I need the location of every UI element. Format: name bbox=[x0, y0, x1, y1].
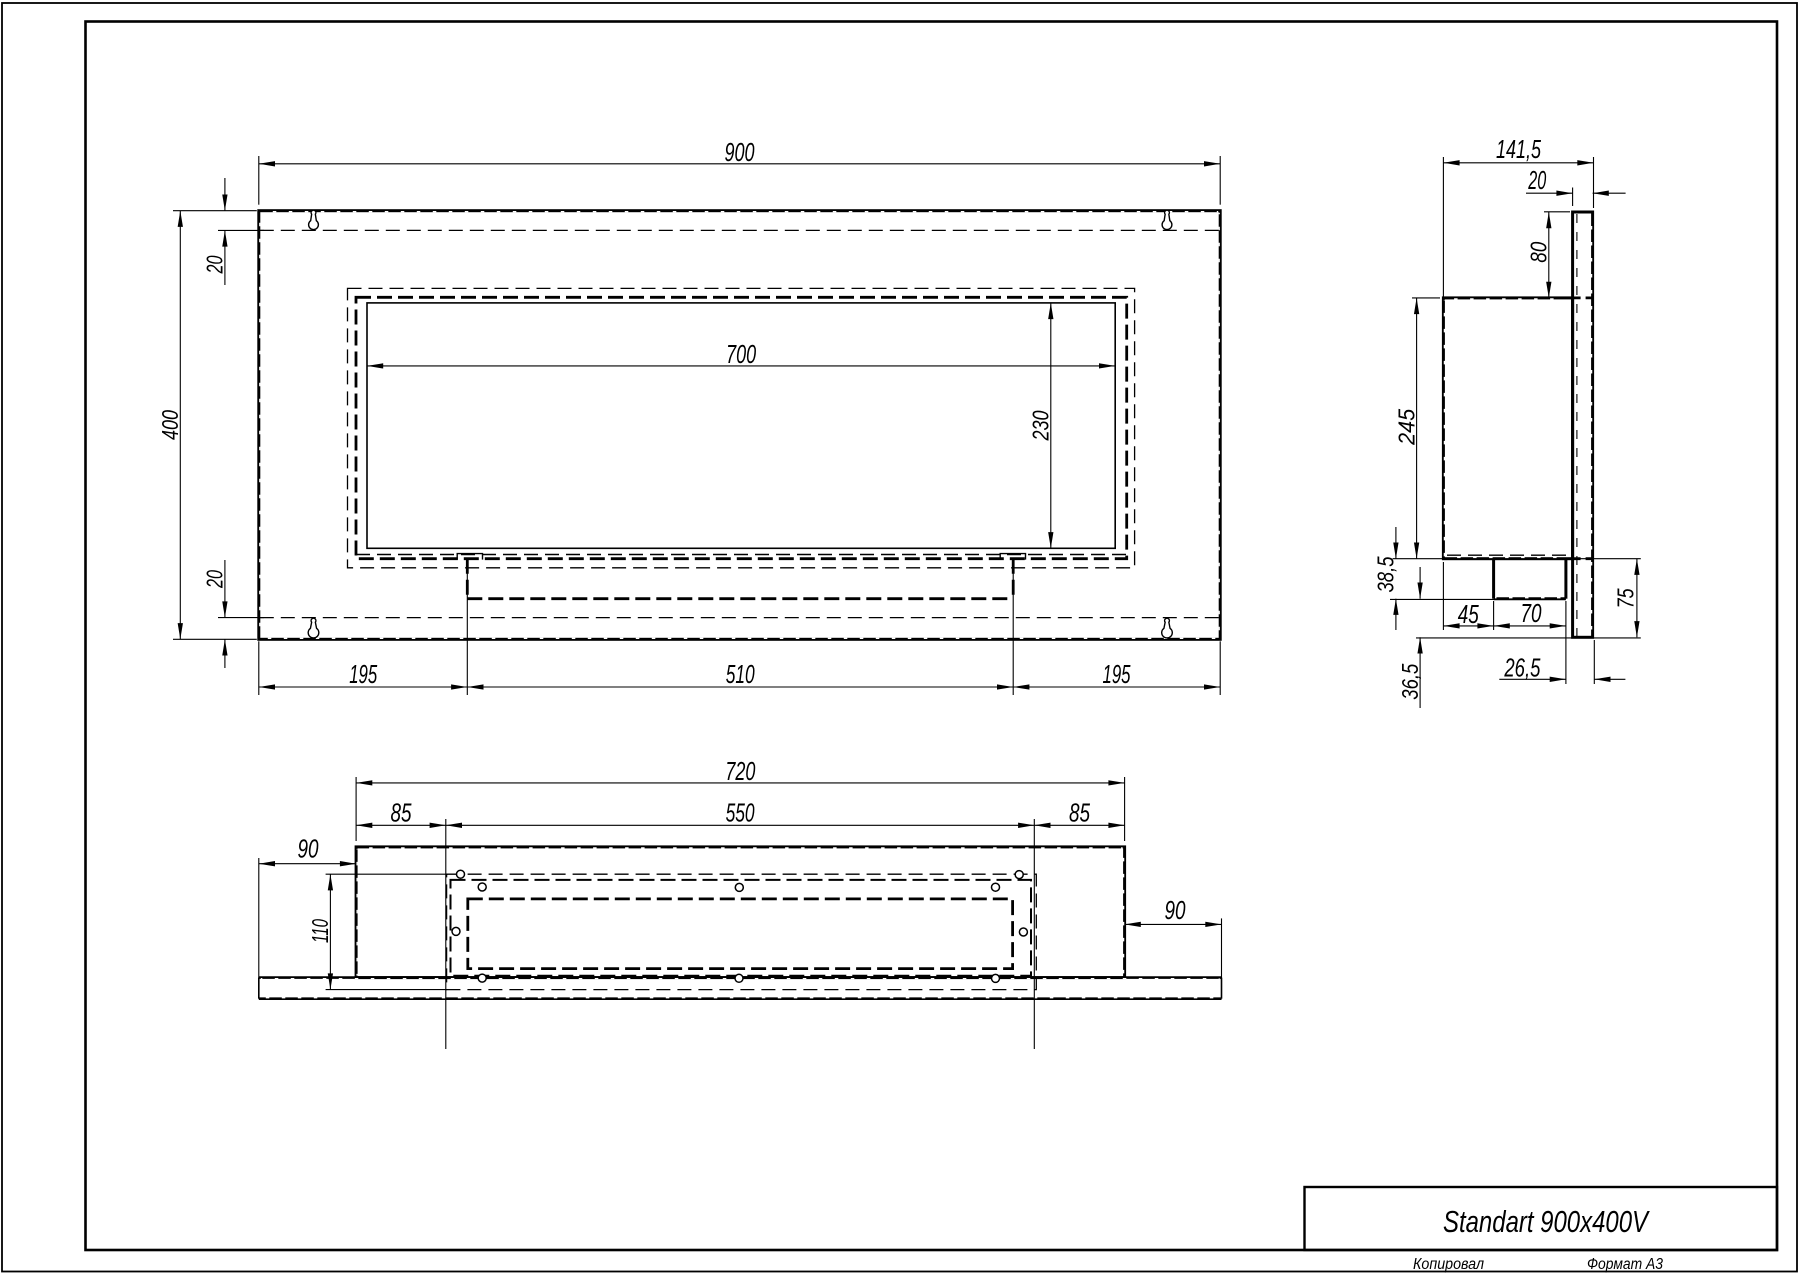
svg-text:75: 75 bbox=[1613, 588, 1639, 608]
svg-text:Копировал: Копировал bbox=[1413, 1256, 1484, 1273]
svg-text:400: 400 bbox=[157, 410, 183, 440]
svg-text:110: 110 bbox=[307, 919, 333, 943]
svg-text:Формат А3: Формат А3 bbox=[1587, 1256, 1663, 1273]
svg-text:85: 85 bbox=[1069, 799, 1091, 827]
svg-text:36,5: 36,5 bbox=[1397, 664, 1423, 700]
svg-text:720: 720 bbox=[725, 758, 755, 786]
svg-text:45: 45 bbox=[1458, 601, 1480, 629]
svg-text:230: 230 bbox=[1028, 410, 1054, 441]
svg-text:195: 195 bbox=[349, 661, 378, 689]
svg-text:70: 70 bbox=[1521, 600, 1542, 628]
svg-text:90: 90 bbox=[298, 836, 319, 864]
svg-text:510: 510 bbox=[726, 661, 755, 689]
svg-text:700: 700 bbox=[726, 341, 756, 369]
svg-text:550: 550 bbox=[726, 799, 755, 827]
svg-text:26,5: 26,5 bbox=[1504, 655, 1541, 683]
svg-text:141,5: 141,5 bbox=[1496, 136, 1542, 164]
svg-text:195: 195 bbox=[1103, 661, 1132, 689]
svg-text:20: 20 bbox=[202, 255, 228, 274]
svg-text:Standart 900x400V: Standart 900x400V bbox=[1443, 1204, 1651, 1239]
svg-text:900: 900 bbox=[725, 139, 755, 167]
svg-text:245: 245 bbox=[1393, 409, 1419, 446]
svg-text:85: 85 bbox=[391, 799, 413, 827]
svg-text:20: 20 bbox=[1528, 167, 1547, 195]
svg-text:90: 90 bbox=[1165, 897, 1186, 925]
svg-text:20: 20 bbox=[202, 570, 228, 589]
svg-text:38,5: 38,5 bbox=[1373, 556, 1399, 592]
svg-text:80: 80 bbox=[1526, 242, 1552, 263]
